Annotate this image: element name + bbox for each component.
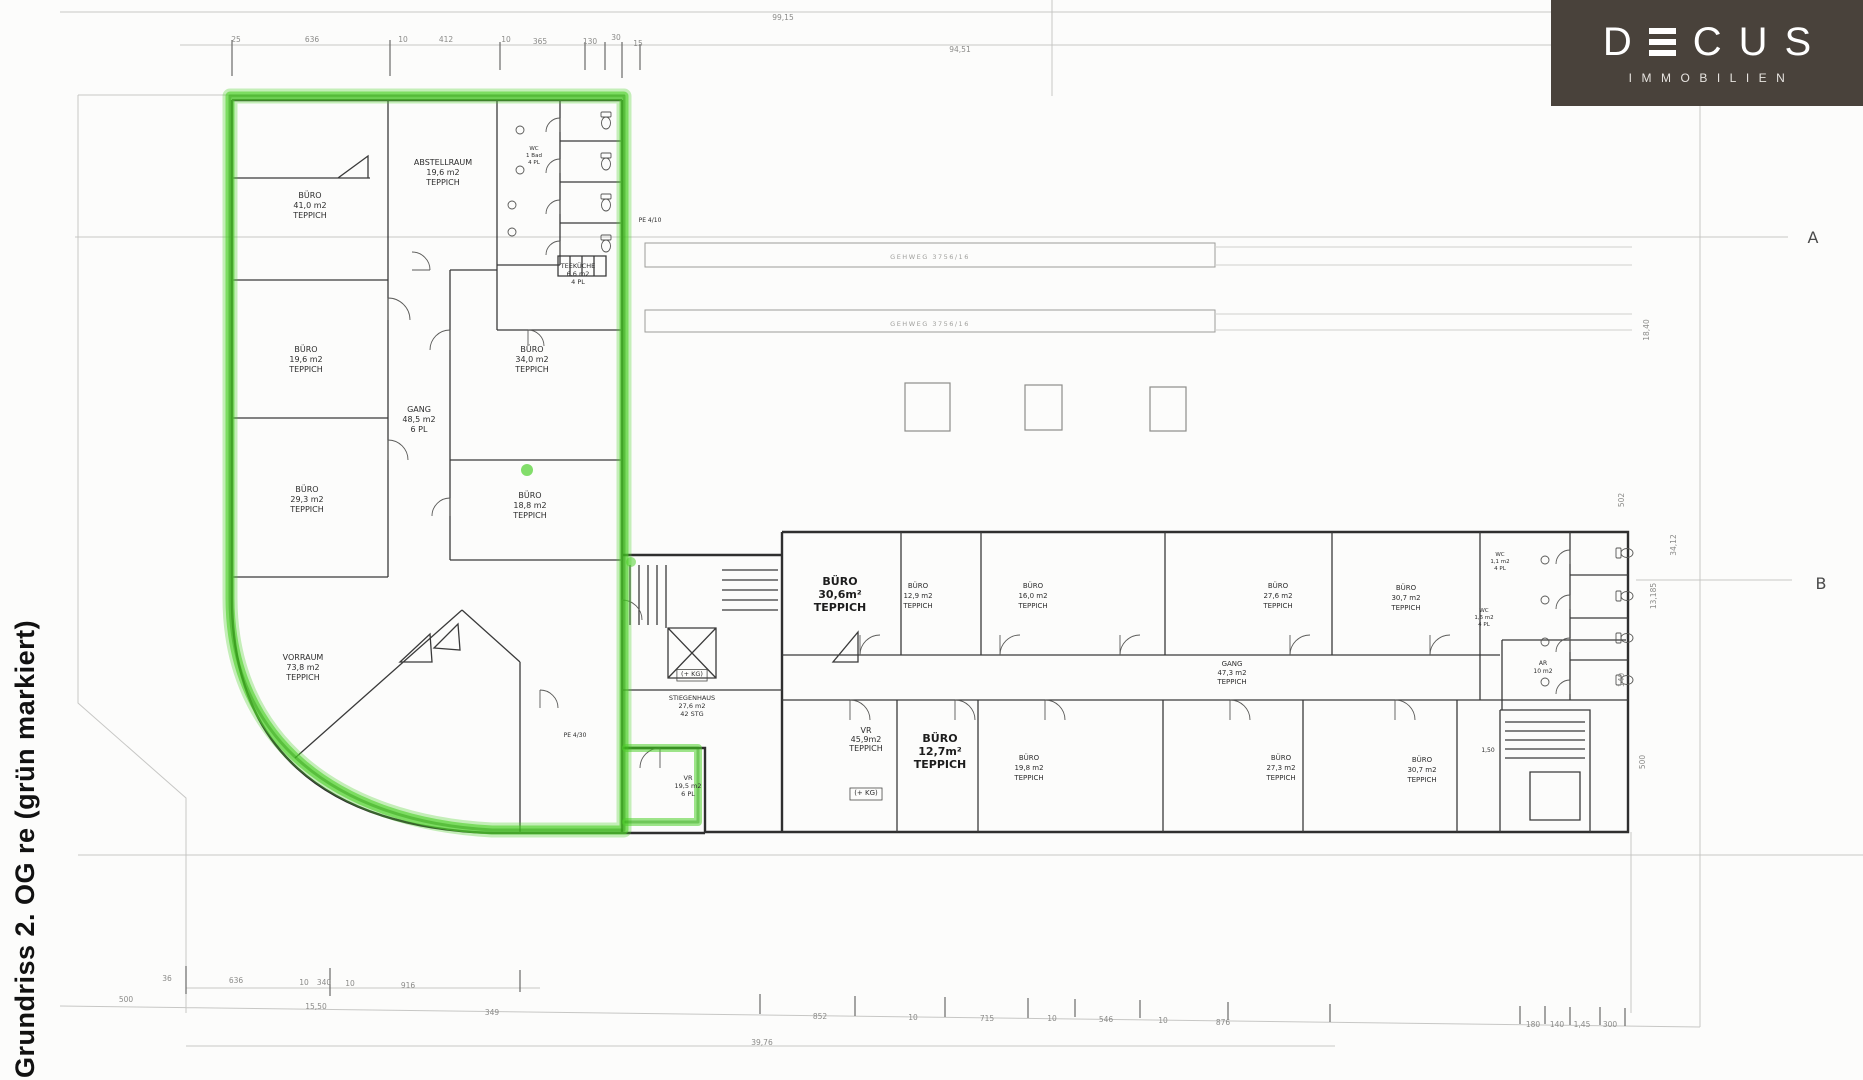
logo-letter-u: U	[1739, 22, 1768, 62]
logo-wordmark: D C U S	[1603, 22, 1811, 62]
dimension-label: 636	[229, 976, 244, 985]
room-label: VR45,9m2TEPPICH	[848, 726, 883, 753]
parcel-strips	[645, 243, 1632, 332]
room-label: BÜRO30,7 m2TEPPICH	[1390, 583, 1420, 612]
dimension-label: 340	[317, 978, 332, 987]
dimension-label: 130	[583, 37, 598, 46]
room-label: BÜRO30,6m²TEPPICH	[814, 574, 867, 614]
room-label: ABSTELLRAUM19,6 m2TEPPICH	[414, 158, 472, 187]
green-marker-main	[230, 96, 624, 830]
dimension-label: 10	[299, 978, 309, 987]
small-label: PE 4/30	[564, 732, 587, 739]
green-marker-main-core	[230, 96, 624, 830]
floor-plan-drawing: BÜRO41,0 m2TEPPICHABSTELLRAUM19,6 m2TEPP…	[0, 0, 1863, 1080]
dimension-label: 10	[1047, 1014, 1057, 1023]
parcel-label: GEHWEG 3756/16	[890, 320, 970, 328]
outer-walls	[232, 100, 1628, 833]
axis-letter: B	[1816, 574, 1827, 593]
scanned-floorplan-page: { "page": { "vertical_title": "Grundriss…	[0, 0, 1863, 1080]
dimension-label: 500	[1638, 755, 1647, 770]
parcel-label: GEHWEG 3756/16	[890, 253, 970, 261]
small-label: (+ KG)	[854, 789, 878, 797]
dimension-label: 876	[1216, 1018, 1231, 1027]
dimension-label: 636	[305, 35, 320, 44]
room-label: GANG47,3 m2TEPPICH	[1216, 660, 1246, 686]
room-label: BÜRO27,6 m2TEPPICH	[1262, 581, 1292, 610]
dimension-label: 140	[1550, 1020, 1565, 1029]
room-label: AR10 m2	[1533, 660, 1552, 675]
toilet-icons	[601, 112, 1633, 685]
dimension-label: 18,40	[1642, 319, 1651, 341]
room-label: BÜRO41,0 m2TEPPICH	[292, 190, 327, 220]
logo-letter-s: S	[1784, 22, 1811, 62]
dimension-label: 502	[1617, 493, 1626, 508]
dimension-label: 36	[162, 974, 172, 983]
dimension-label: 546	[1099, 1015, 1114, 1024]
green-marker-main-glow	[230, 96, 624, 830]
dimension-label: 412	[439, 35, 454, 44]
dimension-label: 500	[119, 995, 134, 1004]
dimension-label: 300	[1603, 1020, 1618, 1029]
dimension-label: 94,51	[949, 45, 971, 54]
room-label: BÜRO12,7m²TEPPICH	[914, 731, 967, 771]
axis-letter: A	[1808, 228, 1819, 247]
decus-logo: D C U S IMMOBILIEN	[1551, 0, 1863, 106]
room-label: BÜRO18,8 m2TEPPICH	[512, 490, 547, 520]
dimension-label: 916	[401, 981, 416, 990]
room-label: BÜRO16,0 m2TEPPICH	[1017, 581, 1047, 610]
logo-letter-c: C	[1693, 22, 1722, 62]
interior-walls	[232, 100, 1628, 833]
dimension-label: 13,185	[1649, 583, 1658, 609]
logo-letter-e-bars	[1649, 28, 1676, 56]
dimension-label: 34,12	[1669, 534, 1678, 556]
dimension-label: 10	[398, 35, 408, 44]
shaft-rectangles	[905, 383, 1186, 431]
room-label: BÜRO19,6 m2TEPPICH	[288, 344, 323, 374]
door-arcs	[388, 118, 1570, 768]
dimension-label: 1,45	[1574, 1020, 1591, 1029]
dimension-label: 30	[611, 33, 621, 42]
room-label: BÜRO29,3 m2TEPPICH	[289, 484, 324, 514]
logo-subtitle: IMMOBILIEN	[1629, 71, 1795, 85]
plan-labels: BÜRO41,0 m2TEPPICHABSTELLRAUM19,6 m2TEPP…	[119, 13, 1827, 1047]
small-label: (+ KG)	[681, 670, 703, 678]
page-title-vertical: Grundriss 2. OG re (grün markiert)	[10, 620, 41, 1078]
small-label: WC1 Bad4 PL	[526, 146, 542, 166]
survey-lines	[60, 0, 1863, 1046]
dimension-label: 25	[231, 35, 241, 44]
dimension-label: 180	[1526, 1020, 1541, 1029]
dimension-label: 99,15	[772, 13, 794, 22]
room-label: BÜRO30,7 m2TEPPICH	[1406, 755, 1436, 784]
small-label: WC1,6 m24 PL	[1474, 608, 1493, 628]
small-label: WC1,1 m24 PL	[1490, 552, 1509, 572]
dimension-label: 715	[980, 1014, 995, 1023]
room-label: BÜRO12,9 m2TEPPICH	[902, 581, 932, 610]
green-marker-blob-2	[626, 557, 636, 567]
dimension-label: 10	[1158, 1016, 1168, 1025]
room-label: BÜRO27,3 m2TEPPICH	[1265, 753, 1295, 782]
dimension-label: 10	[345, 979, 355, 988]
small-label: 1,50	[1481, 747, 1495, 754]
dimension-label: 15,50	[305, 1002, 327, 1011]
room-label: VORRAUM73,8 m2TEPPICH	[283, 653, 324, 682]
room-label: STIEGENHAUS27,6 m242 STG	[669, 694, 715, 718]
dimension-label: 39,76	[751, 1038, 773, 1047]
small-label: PE 4/10	[639, 217, 662, 224]
dimension-label: 349	[485, 1008, 500, 1017]
room-label: BÜRO34,0 m2TEPPICH	[514, 344, 549, 374]
logo-letter-d: D	[1603, 22, 1632, 62]
room-label: BÜRO19,8 m2TEPPICH	[1013, 753, 1043, 782]
dimension-label: 10	[501, 35, 511, 44]
dimension-label: 852	[813, 1012, 828, 1021]
dimension-label: 365	[533, 37, 548, 46]
dimension-label: 15	[633, 39, 643, 48]
room-label: GANG48,5 m26 PL	[402, 405, 435, 434]
green-marker-blob	[521, 464, 533, 476]
room-label: TEEKÜCHE6,6 m24 PL	[560, 261, 596, 286]
dimension-label: 140	[1617, 673, 1626, 688]
dimension-label: 10	[908, 1013, 918, 1022]
